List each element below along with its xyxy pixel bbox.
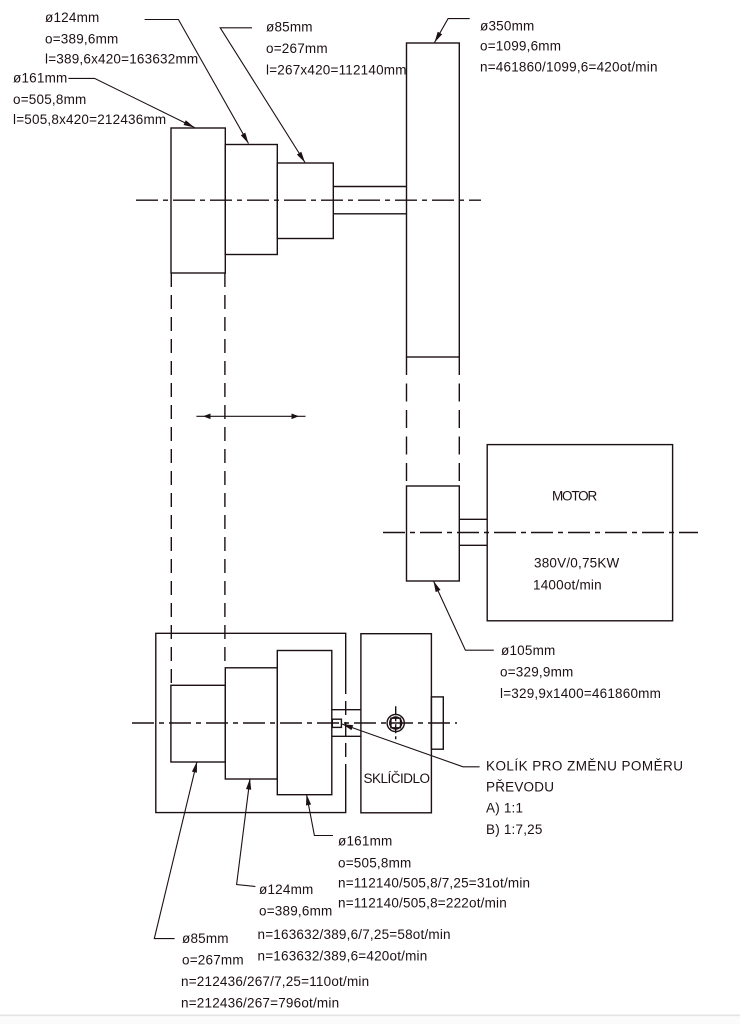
- svg-text:B) 1:7,25: B) 1:7,25: [486, 822, 543, 837]
- svg-text:l=389,6x420=163632mm: l=389,6x420=163632mm: [45, 52, 198, 67]
- svg-text:n=212436/267/7,25=110ot/min: n=212436/267/7,25=110ot/min: [181, 974, 369, 989]
- svg-text:o=389,6mm: o=389,6mm: [45, 32, 118, 47]
- svg-text:l=267x420=112140mm: l=267x420=112140mm: [266, 63, 407, 78]
- svg-text:KOLÍK PRO ZMĚNU POMĚRU: KOLÍK PRO ZMĚNU POMĚRU: [486, 759, 683, 774]
- svg-text:SKLÍČIDLO: SKLÍČIDLO: [364, 771, 430, 786]
- svg-text:ø105mm: ø105mm: [501, 643, 555, 658]
- svg-text:n=112140/505,8=222ot/min: n=112140/505,8=222ot/min: [338, 896, 507, 911]
- svg-text:ø85mm: ø85mm: [266, 20, 313, 35]
- svg-text:o=267mm: o=267mm: [266, 41, 328, 56]
- svg-text:o=267mm: o=267mm: [182, 953, 244, 968]
- svg-text:ø350mm: ø350mm: [480, 19, 534, 34]
- svg-text:ø124mm: ø124mm: [259, 882, 313, 897]
- svg-text:n=163632/389,6/7,25=58ot/min: n=163632/389,6/7,25=58ot/min: [258, 927, 451, 942]
- svg-text:n=112140/505,8/7,25=31ot/min: n=112140/505,8/7,25=31ot/min: [338, 876, 530, 891]
- svg-text:l=505,8x420=212436mm: l=505,8x420=212436mm: [13, 112, 166, 127]
- svg-text:o=505,8mm: o=505,8mm: [13, 92, 86, 107]
- svg-text:o=389,6mm: o=389,6mm: [259, 904, 332, 919]
- svg-text:n=212436/267=796ot/min: n=212436/267=796ot/min: [181, 996, 339, 1011]
- svg-text:PŘEVODU: PŘEVODU: [486, 780, 554, 795]
- svg-text:o=329,9mm: o=329,9mm: [500, 665, 573, 680]
- svg-text:ø161mm: ø161mm: [338, 834, 392, 849]
- svg-text:n=461860/1099,6=420ot/min: n=461860/1099,6=420ot/min: [480, 60, 658, 75]
- svg-text:ø161mm: ø161mm: [13, 71, 67, 86]
- svg-text:380V/0,75KW: 380V/0,75KW: [534, 556, 620, 571]
- svg-text:MOTOR: MOTOR: [552, 489, 597, 504]
- svg-text:l=329,9x1400=461860mm: l=329,9x1400=461860mm: [500, 686, 661, 701]
- svg-text:o=1099,6mm: o=1099,6mm: [480, 39, 561, 54]
- svg-text:ø85mm: ø85mm: [182, 931, 229, 946]
- svg-text:A) 1:1: A) 1:1: [486, 801, 523, 816]
- svg-text:1400ot/min: 1400ot/min: [533, 578, 602, 593]
- svg-text:n=163632/389,6=420ot/min: n=163632/389,6=420ot/min: [258, 949, 428, 964]
- svg-text:o=505,8mm: o=505,8mm: [338, 856, 411, 871]
- svg-text:ø124mm: ø124mm: [45, 10, 99, 25]
